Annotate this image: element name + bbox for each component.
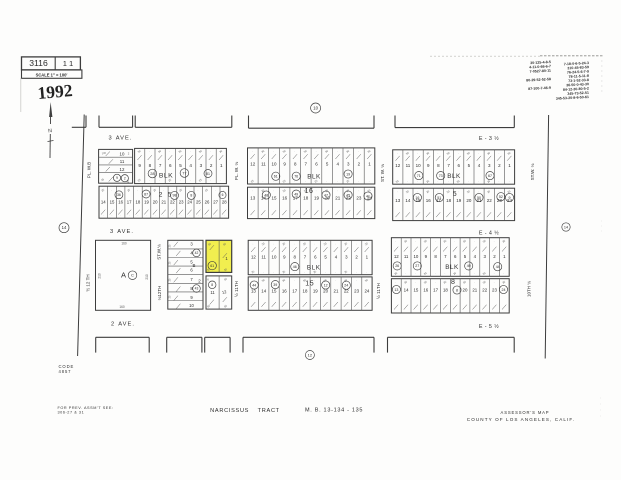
- svg-text:8: 8: [190, 194, 192, 198]
- svg-text:18: 18: [446, 198, 452, 203]
- svg-text:·: ·: [172, 215, 173, 218]
- svg-text:44: 44: [252, 283, 256, 287]
- svg-text:12: 12: [394, 254, 399, 259]
- svg-text:23: 23: [492, 288, 497, 293]
- svg-text:·: ·: [207, 215, 208, 218]
- svg-text:ST.W. ⅛: ST.W. ⅛: [530, 163, 535, 180]
- svg-text:22: 22: [482, 288, 487, 293]
- svg-text:81: 81: [206, 172, 210, 176]
- svg-text:27: 27: [415, 264, 419, 268]
- svg-text:8: 8: [451, 279, 455, 286]
- svg-text:24: 24: [364, 289, 369, 294]
- svg-text:13: 13: [394, 288, 398, 292]
- svg-text:21: 21: [335, 196, 341, 201]
- svg-text:11: 11: [210, 290, 215, 295]
- svg-text:9: 9: [138, 163, 141, 168]
- svg-text:·: ·: [189, 215, 190, 218]
- svg-text:2: 2: [210, 163, 213, 168]
- svg-text:20: 20: [466, 198, 472, 203]
- svg-text:61: 61: [210, 264, 214, 268]
- svg-text:15: 15: [305, 281, 314, 288]
- svg-text:23: 23: [356, 196, 362, 201]
- svg-text:16: 16: [426, 198, 432, 203]
- svg-text:20: 20: [463, 288, 468, 293]
- svg-text:6: 6: [169, 163, 172, 168]
- svg-text::: :: [602, 89, 603, 93]
- svg-text:E - 4 ½: E - 4 ½: [479, 230, 499, 237]
- svg-text:12: 12: [251, 255, 256, 260]
- svg-text:14: 14: [101, 200, 106, 205]
- svg-text:160: 160: [119, 305, 125, 309]
- svg-text:PL. W.B: PL. W.B: [87, 162, 92, 178]
- svg-text::: :: [602, 84, 603, 88]
- svg-text:73: 73: [439, 174, 443, 178]
- svg-text:8: 8: [456, 288, 458, 292]
- svg-text:4: 4: [189, 163, 192, 168]
- svg-text:15: 15: [413, 288, 418, 293]
- svg-text:·: ·: [146, 215, 147, 218]
- svg-text:16: 16: [118, 200, 123, 205]
- svg-text:·: ·: [137, 215, 138, 218]
- svg-text:47: 47: [324, 193, 328, 197]
- svg-text:½ 11TH: ½ 11TH: [233, 281, 239, 297]
- svg-text:8: 8: [149, 163, 152, 168]
- svg-text:18: 18: [443, 288, 448, 293]
- svg-text:ST.W.⅛: ST.W.⅛: [156, 244, 161, 260]
- svg-text:12: 12: [250, 162, 256, 167]
- svg-text:B: B: [192, 263, 195, 268]
- svg-text:BLK: BLK: [159, 173, 173, 180]
- svg-text:13: 13: [395, 198, 401, 203]
- svg-text::: :: [602, 59, 603, 63]
- svg-text:11: 11: [404, 254, 409, 259]
- svg-text:M. B. 13-134 - 135: M. B. 13-134 - 135: [305, 408, 363, 414]
- svg-text::: :: [602, 79, 603, 83]
- svg-text:10TH ⅛: 10TH ⅛: [526, 281, 531, 297]
- svg-text:½ 11TH: ½ 11TH: [375, 283, 381, 299]
- svg-text:·: ·: [120, 215, 121, 218]
- svg-text:19: 19: [144, 200, 149, 205]
- svg-text:26: 26: [395, 264, 399, 268]
- svg-text:1: 1: [220, 163, 223, 168]
- svg-text:2: 2: [124, 176, 126, 180]
- svg-text:23: 23: [354, 289, 359, 294]
- svg-text:10: 10: [189, 303, 194, 308]
- svg-text:24: 24: [502, 288, 506, 292]
- svg-text:76: 76: [294, 175, 298, 179]
- svg-text:44: 44: [496, 265, 500, 269]
- svg-text:12: 12: [324, 283, 328, 287]
- svg-text:18: 18: [136, 200, 141, 205]
- svg-text:19: 19: [314, 196, 320, 201]
- svg-text:87: 87: [144, 192, 148, 196]
- svg-text:·: ·: [224, 215, 225, 218]
- svg-text:12: 12: [120, 167, 125, 172]
- svg-text:15: 15: [110, 200, 115, 205]
- svg-text:⅛12TH: ⅛12TH: [157, 286, 162, 301]
- svg-text:160: 160: [121, 242, 127, 246]
- svg-text:18: 18: [303, 196, 309, 201]
- svg-text:77: 77: [182, 171, 186, 175]
- svg-text:E - 3 ½: E - 3 ½: [479, 135, 499, 142]
- svg-text:·: ·: [103, 215, 104, 218]
- svg-text:21: 21: [161, 200, 166, 205]
- svg-text:FOR PREV. ASSM’T SEE:: FOR PREV. ASSM’T SEE:: [58, 406, 114, 410]
- svg-text:PL. W. ⅛: PL. W. ⅛: [234, 162, 239, 181]
- svg-text:21: 21: [334, 289, 339, 294]
- svg-text:3 AVE.: 3 AVE.: [109, 136, 133, 142]
- svg-text:16: 16: [415, 196, 419, 200]
- svg-text:3: 3: [200, 163, 203, 168]
- svg-text:·: ·: [163, 215, 164, 218]
- svg-text:27: 27: [213, 200, 218, 205]
- svg-text:6: 6: [222, 193, 224, 197]
- svg-text:19: 19: [456, 198, 462, 203]
- svg-text:10: 10: [416, 163, 422, 168]
- svg-text:BLK: BLK: [307, 174, 321, 181]
- svg-text:12: 12: [395, 163, 401, 168]
- svg-text:C: C: [131, 273, 134, 278]
- svg-text:10: 10: [413, 254, 418, 259]
- svg-text:19: 19: [313, 289, 318, 294]
- svg-text:5: 5: [179, 163, 182, 168]
- svg-text:11: 11: [120, 159, 125, 164]
- svg-text:NARCISSUS TRACT: NARCISSUS TRACT: [210, 408, 280, 414]
- svg-text:ASSESSOR’S MAP: ASSESSOR’S MAP: [501, 410, 550, 415]
- svg-text:12: 12: [308, 352, 313, 357]
- svg-text:14: 14: [405, 198, 411, 203]
- svg-text:17: 17: [433, 288, 438, 293]
- svg-text:16: 16: [282, 289, 287, 294]
- svg-text:98: 98: [173, 194, 177, 198]
- svg-text:·: ·: [198, 215, 199, 218]
- svg-text:ST. W. ⅛: ST. W. ⅛: [380, 164, 385, 182]
- svg-text:7: 7: [159, 163, 162, 168]
- svg-text:42: 42: [195, 251, 199, 255]
- svg-text::: :: [602, 64, 603, 68]
- svg-text:49: 49: [467, 264, 471, 268]
- svg-text:71: 71: [417, 174, 421, 178]
- svg-text:22: 22: [170, 200, 175, 205]
- svg-text:15: 15: [272, 289, 277, 294]
- svg-text:50: 50: [477, 196, 481, 200]
- svg-text:43: 43: [195, 287, 199, 291]
- svg-text:25: 25: [196, 200, 201, 205]
- svg-text::: :: [602, 74, 603, 78]
- svg-text:16: 16: [305, 188, 314, 195]
- svg-text:9: 9: [116, 176, 118, 180]
- svg-text:10: 10: [272, 255, 277, 260]
- svg-text::: :: [602, 69, 603, 73]
- svg-text:51: 51: [437, 196, 441, 200]
- svg-text:13: 13: [250, 196, 256, 201]
- svg-text:210: 210: [145, 274, 149, 280]
- svg-text:BLK: BLK: [307, 265, 321, 272]
- svg-text:·: ·: [112, 215, 113, 218]
- svg-text:28: 28: [150, 172, 154, 176]
- svg-text:A: A: [121, 271, 126, 280]
- svg-text:23: 23: [179, 200, 184, 205]
- svg-text:4857: 4857: [59, 369, 72, 374]
- svg-text:11: 11: [261, 255, 266, 260]
- svg-text:14: 14: [564, 225, 568, 229]
- svg-text:SCALE 1″ = 100′: SCALE 1″ = 100′: [36, 73, 68, 78]
- svg-text:3 AVE.: 3 AVE.: [110, 229, 134, 235]
- svg-text:52: 52: [499, 195, 503, 199]
- svg-text:9: 9: [509, 196, 511, 200]
- svg-text:·: ·: [155, 215, 156, 218]
- svg-text:·: ·: [129, 215, 130, 218]
- svg-text:36: 36: [117, 193, 121, 197]
- svg-text:10: 10: [313, 106, 318, 111]
- svg-text:306-27 & 31: 306-27 & 31: [58, 411, 85, 415]
- svg-text:1992: 1992: [37, 80, 74, 103]
- svg-text:24: 24: [344, 284, 348, 288]
- svg-text:14: 14: [261, 289, 266, 294]
- svg-text:·: ·: [181, 215, 182, 218]
- svg-text:BLK: BLK: [447, 173, 461, 180]
- svg-text:15: 15: [271, 196, 277, 201]
- svg-text:22: 22: [487, 198, 493, 203]
- svg-text:39: 39: [273, 283, 277, 287]
- svg-text:61: 61: [274, 175, 278, 179]
- svg-text:67: 67: [488, 174, 492, 178]
- svg-text:2 AVE.: 2 AVE.: [111, 322, 135, 328]
- svg-text:17: 17: [127, 200, 132, 205]
- svg-text:11: 11: [406, 163, 411, 168]
- svg-text:48: 48: [264, 193, 268, 197]
- svg-text:·: ·: [215, 215, 216, 218]
- svg-text:11: 11: [261, 162, 266, 167]
- svg-text:18: 18: [303, 289, 308, 294]
- svg-text:10: 10: [271, 162, 277, 167]
- svg-text:16: 16: [423, 288, 428, 293]
- svg-text:10: 10: [120, 152, 125, 157]
- svg-text:½ 12 TH: ½ 12 TH: [84, 274, 90, 291]
- svg-text:19: 19: [346, 172, 350, 176]
- svg-text:14: 14: [404, 288, 409, 293]
- svg-text:5: 5: [453, 191, 457, 198]
- svg-text:21: 21: [472, 288, 477, 293]
- svg-text:41: 41: [366, 194, 370, 198]
- svg-text:26: 26: [205, 200, 210, 205]
- svg-text:49: 49: [294, 192, 298, 196]
- svg-text:17: 17: [292, 289, 297, 294]
- svg-text:45: 45: [346, 193, 350, 197]
- svg-text:3116: 3116: [29, 58, 48, 68]
- svg-text:14: 14: [62, 225, 67, 230]
- svg-text:46: 46: [293, 265, 297, 269]
- svg-text:E - 5 ½: E - 5 ½: [479, 323, 499, 330]
- svg-text:8: 8: [211, 283, 213, 287]
- svg-text:BLK: BLK: [445, 264, 459, 271]
- svg-text:24: 24: [187, 200, 192, 205]
- svg-text:1 1: 1 1: [63, 59, 74, 68]
- svg-text:COUNTY OF LOS ANGELES, CALIF.: COUNTY OF LOS ANGELES, CALIF.: [467, 417, 575, 422]
- svg-text:210: 210: [97, 273, 101, 279]
- svg-text:28: 28: [222, 200, 227, 205]
- svg-text:20: 20: [153, 200, 158, 205]
- svg-text:16: 16: [282, 196, 288, 201]
- svg-text:2: 2: [159, 192, 163, 199]
